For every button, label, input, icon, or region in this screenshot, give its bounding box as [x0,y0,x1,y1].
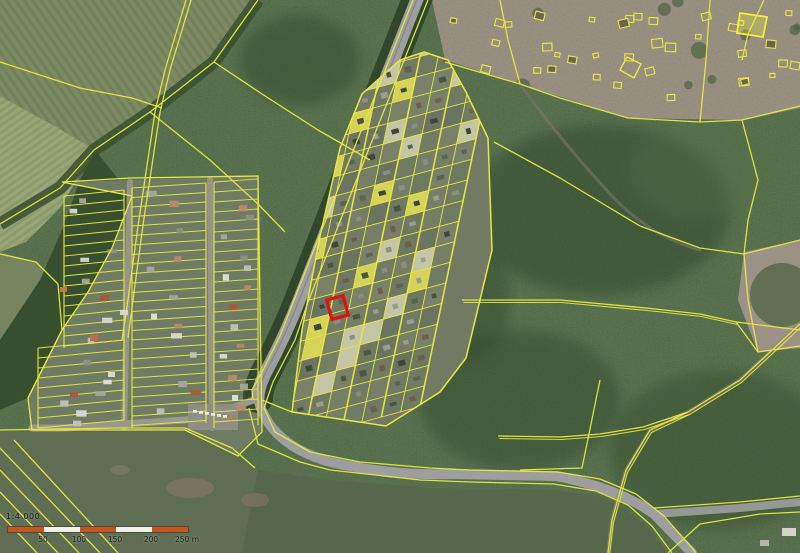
village-street-2 [210,180,212,428]
parked-car [217,414,221,417]
map-viewport[interactable]: 1:4 000 50100150200250 m [0,0,800,553]
parked-car [223,415,227,418]
parked-car [205,412,209,415]
parked-car [199,411,203,414]
parked-car [211,413,215,416]
parked-car [229,416,233,419]
map-canvas[interactable] [0,0,800,553]
parked-car [193,410,197,413]
